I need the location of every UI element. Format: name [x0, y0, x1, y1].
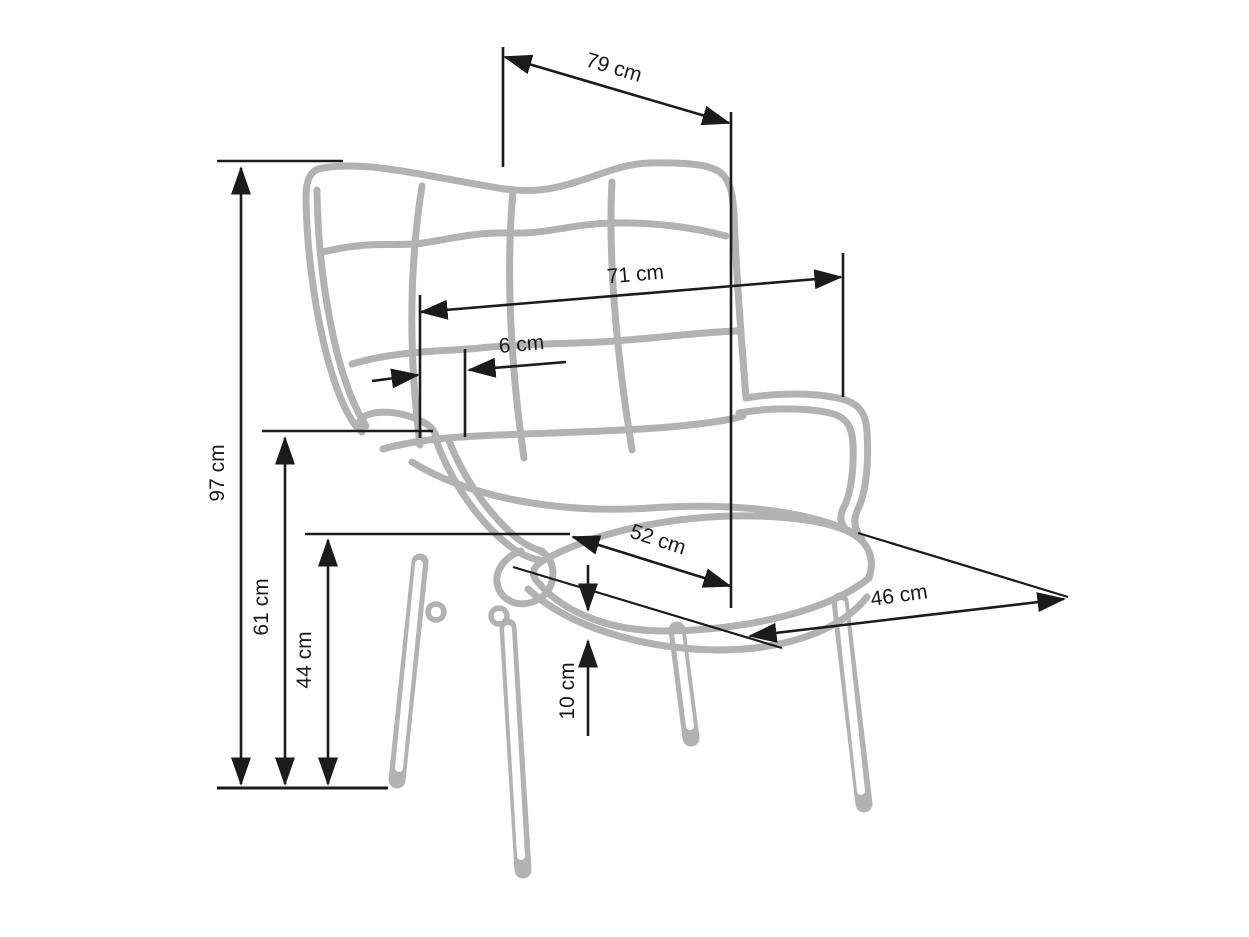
label-back-width: 71 cm [606, 261, 665, 289]
label-wing-offset: 6 cm [498, 331, 545, 358]
label-overall-depth: 79 cm [583, 49, 644, 87]
diagram-page: 79 cm 71 cm 6 cm 97 cm 61 cm 44 cm 52 cm… [0, 0, 1249, 937]
seat-frame-rail [528, 589, 867, 650]
label-arm-height: 61 cm [250, 578, 273, 635]
backrest-left-inner-edge [317, 190, 366, 426]
label-seat-height: 44 cm [293, 631, 316, 688]
seat-cushion-top [546, 516, 871, 578]
chair-legs [397, 562, 864, 870]
front-right-leg-bracket [491, 608, 507, 624]
label-seat-depth: 46 cm [869, 580, 929, 611]
backrest-outline [306, 163, 746, 432]
chair-dimension-diagram: 79 cm 71 cm 6 cm 97 cm 61 cm 44 cm 52 cm… [0, 0, 1249, 937]
back-seam-horizontal-1 [323, 223, 726, 252]
label-cushion-thickness: 10 cm [556, 662, 579, 719]
arrow-right [469, 362, 566, 370]
dimension-wing-offset [372, 349, 566, 437]
label-overall-height: 97 cm [206, 444, 229, 501]
front-left-leg-bracket [428, 604, 444, 620]
